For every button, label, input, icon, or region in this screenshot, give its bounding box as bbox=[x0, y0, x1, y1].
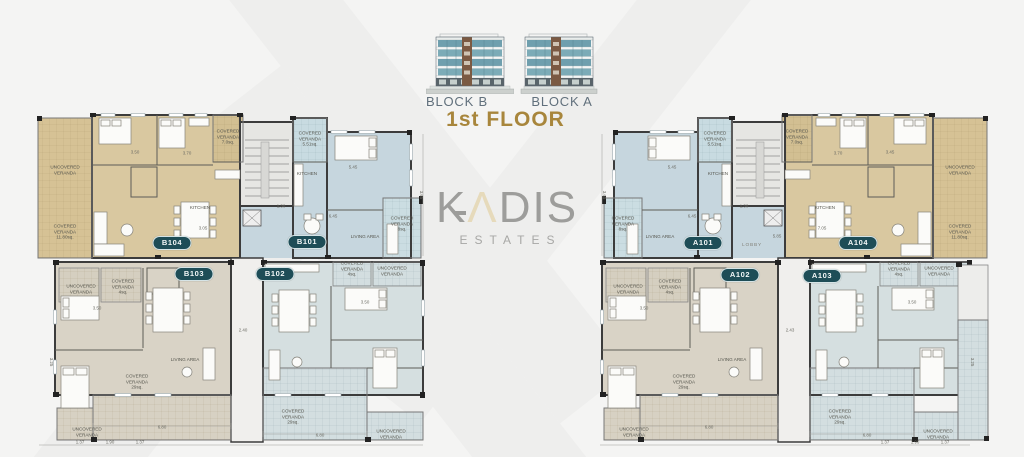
dimension-label: 3.65 bbox=[418, 191, 424, 200]
dimension-label: 3.45 bbox=[886, 149, 895, 155]
room-label: UNCOVERED VERANDA bbox=[72, 426, 101, 437]
logo-letter-a: Λ bbox=[467, 183, 498, 232]
dimension-label: 3.25 bbox=[969, 358, 975, 367]
unit-badge-b104: B104 bbox=[153, 236, 192, 250]
block-a-label: BLOCK A bbox=[520, 94, 604, 109]
room-label: UNCOVERED VERANDA bbox=[924, 265, 953, 276]
dimension-label: 3.50 bbox=[908, 299, 917, 305]
dimension-label: 5.45 bbox=[349, 164, 358, 170]
dimension-label: 3.50 bbox=[640, 305, 649, 311]
unit-badge-b102: B102 bbox=[256, 267, 295, 281]
dimension-label: 2.43 bbox=[786, 327, 795, 333]
dimension-label: 6.45 bbox=[688, 213, 697, 219]
room-label-layer: UNCOVERED VERANDACOVERED VERANDA 11.80sq… bbox=[35, 110, 425, 448]
unit-badge-b101: B101 bbox=[288, 235, 327, 249]
dimension-label: 5.45 bbox=[668, 164, 677, 170]
unit-badge-a104: A104 bbox=[839, 236, 878, 250]
unit-badge-a103: A103 bbox=[803, 269, 842, 283]
room-label: COVERED VERANDA 4sq. bbox=[659, 278, 682, 295]
room-label: COVERED VERANDA 7.0sq. bbox=[217, 128, 240, 145]
unit-badge-a102: A102 bbox=[721, 268, 760, 282]
building-elevation-block-a bbox=[519, 33, 599, 97]
room-label: UNCOVERED VERANDA bbox=[613, 283, 642, 294]
floor-plan-block-b: UNCOVERED VERANDACOVERED VERANDA 11.80sq… bbox=[35, 110, 425, 448]
block-b-label: BLOCK B bbox=[416, 94, 498, 109]
unit-badge-b103: B103 bbox=[175, 267, 214, 281]
dimension-label: 3.50 bbox=[93, 305, 102, 311]
room-label: LIVING AREA bbox=[718, 357, 747, 363]
dimension-label: 6.45 bbox=[329, 213, 338, 219]
dimension-label: 3.05 bbox=[199, 225, 208, 231]
dimension-label: 3.65 bbox=[601, 191, 607, 200]
floor-title: 1st FLOOR bbox=[408, 108, 603, 132]
dimension-label: 1.37 bbox=[76, 439, 85, 445]
dimension-label: 7.05 bbox=[818, 225, 827, 231]
room-label: UNCOVERED VERANDA bbox=[377, 265, 406, 276]
dimension-label: 6.80 bbox=[158, 424, 167, 430]
room-label: UNCOVERED VERANDA bbox=[945, 164, 974, 175]
unit-badge-a101: A101 bbox=[684, 236, 723, 250]
floor-plan-block-a: UNCOVERED VERANDACOVERED VERANDA 11.80sq… bbox=[600, 110, 990, 448]
room-label: COVERED VERANDA 11.80sq. bbox=[949, 223, 972, 240]
dimension-label: 1.37 bbox=[941, 439, 950, 445]
dimension-label: 1.90 bbox=[911, 439, 920, 445]
dimension-label: 3.70 bbox=[834, 150, 843, 156]
dimension-label: 6.80 bbox=[705, 424, 714, 430]
room-label: LOBBY bbox=[742, 243, 762, 249]
room-label: COVERED VERANDA 29sq. bbox=[282, 408, 305, 425]
brand-logo: KΛDIS ESTATES bbox=[418, 186, 596, 247]
room-label: COVERED VERANDA 29sq. bbox=[673, 373, 696, 390]
room-label: COVERED VERANDA 7.0sq. bbox=[786, 128, 809, 145]
room-label: COVERED VERANDA 4sq. bbox=[341, 260, 364, 277]
room-label: UNCOVERED VERANDA bbox=[50, 164, 79, 175]
logo-letters-dis: DIS bbox=[499, 183, 578, 232]
room-label: COVERED VERANDA 4sq. bbox=[112, 278, 135, 295]
dimension-label: 2.40 bbox=[239, 327, 248, 333]
room-label: COVERED VERANDA 29sq. bbox=[829, 408, 852, 425]
dimension-label: 1.37 bbox=[881, 439, 890, 445]
dimension-label: 1.90 bbox=[106, 439, 115, 445]
room-label: KITCHEN bbox=[815, 205, 835, 211]
logo-letter-k: K bbox=[436, 183, 467, 232]
room-label: LIVING AREA bbox=[646, 234, 675, 240]
room-label: UNCOVERED VERANDA bbox=[619, 426, 648, 437]
room-label: KITCHEN bbox=[297, 171, 317, 177]
room-label: LIVING AREA bbox=[171, 357, 200, 363]
logo-estates: ESTATES bbox=[418, 233, 596, 247]
room-label: COVERED VERANDA 4sq. bbox=[888, 260, 911, 277]
dimension-label: 3.50 bbox=[131, 149, 140, 155]
dimension-label: 1.37 bbox=[136, 439, 145, 445]
dimension-label: 3.70 bbox=[183, 150, 192, 156]
room-label: COVERED VERANDA 8sq. bbox=[391, 215, 414, 232]
room-label: COVERED VERANDA 29sq. bbox=[126, 373, 149, 390]
room-label: COVERED VERANDA 8sq. bbox=[612, 215, 635, 232]
building-elevation-block-b bbox=[426, 33, 514, 97]
dimension-label: 6.80 bbox=[863, 432, 872, 438]
room-label: UNCOVERED VERANDA bbox=[66, 283, 95, 294]
logo-crossbar bbox=[454, 211, 466, 215]
dimension-label: 5.85 bbox=[773, 233, 782, 239]
dimension-label: 3.50 bbox=[361, 299, 370, 305]
dimension-label: 1.30 bbox=[740, 203, 749, 209]
dimension-label: 6.80 bbox=[316, 432, 325, 438]
room-label: COVERED VERANDA 5.51sq. bbox=[704, 130, 727, 147]
room-label: KITCHEN bbox=[708, 171, 728, 177]
room-label-layer: UNCOVERED VERANDACOVERED VERANDA 11.80sq… bbox=[600, 110, 990, 448]
room-label: UNCOVERED VERANDA bbox=[376, 428, 405, 439]
room-label: KITCHEN bbox=[190, 205, 210, 211]
room-label: COVERED VERANDA 11.80sq. bbox=[54, 223, 77, 240]
dimension-label: 3.25 bbox=[48, 358, 54, 367]
room-label: LIVING AREA bbox=[351, 234, 380, 240]
room-label: UNCOVERED VERANDA bbox=[923, 428, 952, 439]
floor-plan-page: BLOCK B BLOCK A 1st FLOOR KΛDIS ESTATES … bbox=[0, 0, 1024, 457]
dimension-label: 1.30 bbox=[277, 203, 286, 209]
room-label: COVERED VERANDA 5.51sq. bbox=[299, 130, 322, 147]
